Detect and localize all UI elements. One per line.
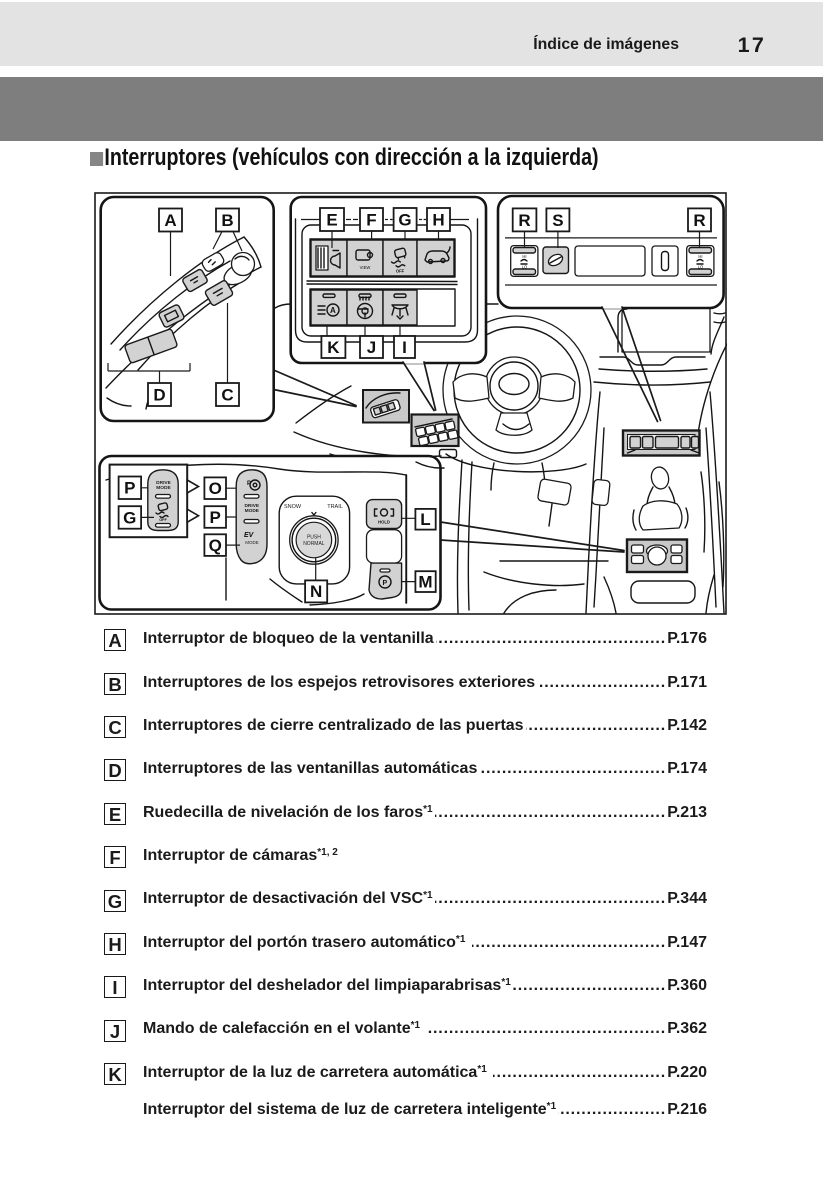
svg-text:HOLD: HOLD	[378, 520, 390, 525]
svg-text:R: R	[518, 211, 530, 230]
svg-text:LO: LO	[698, 265, 704, 270]
svg-text:OFF: OFF	[396, 269, 405, 274]
svg-text:C: C	[221, 386, 233, 405]
svg-text:MODE: MODE	[156, 485, 171, 491]
svg-text:S: S	[552, 211, 563, 230]
svg-text:HI: HI	[698, 254, 702, 259]
svg-text:F: F	[366, 211, 376, 230]
svg-text:K: K	[327, 338, 340, 357]
svg-text:B: B	[221, 211, 233, 230]
svg-text:EV: EV	[244, 532, 255, 539]
svg-text:H: H	[432, 211, 444, 230]
svg-text:R: R	[693, 211, 705, 230]
svg-text:G: G	[398, 211, 411, 230]
svg-text:LO: LO	[522, 265, 528, 270]
svg-text:VIEW: VIEW	[360, 265, 371, 270]
svg-text:MODE: MODE	[245, 540, 259, 545]
svg-text:A: A	[330, 306, 336, 315]
svg-text:OFF: OFF	[159, 518, 167, 522]
svg-text:MODE: MODE	[245, 508, 260, 514]
svg-text:N: N	[310, 582, 322, 601]
svg-text:P: P	[383, 580, 388, 587]
svg-text:A: A	[164, 211, 176, 230]
svg-text:O: O	[209, 479, 222, 498]
svg-text:D: D	[153, 386, 165, 405]
svg-text:Q: Q	[209, 536, 222, 555]
svg-text:L: L	[420, 510, 430, 529]
svg-text:P: P	[210, 508, 221, 527]
svg-text:J: J	[367, 338, 376, 357]
svg-text:M: M	[418, 572, 432, 591]
svg-text:PUSH: PUSH	[307, 535, 321, 541]
svg-text:HI: HI	[522, 254, 526, 259]
svg-text:G: G	[123, 508, 136, 527]
svg-text:P: P	[124, 479, 135, 498]
svg-text:NORMAL: NORMAL	[303, 541, 325, 547]
svg-text:E: E	[326, 211, 337, 230]
svg-text:TRAIL: TRAIL	[327, 504, 343, 510]
svg-text:SNOW: SNOW	[284, 504, 302, 510]
svg-text:I: I	[402, 338, 407, 357]
